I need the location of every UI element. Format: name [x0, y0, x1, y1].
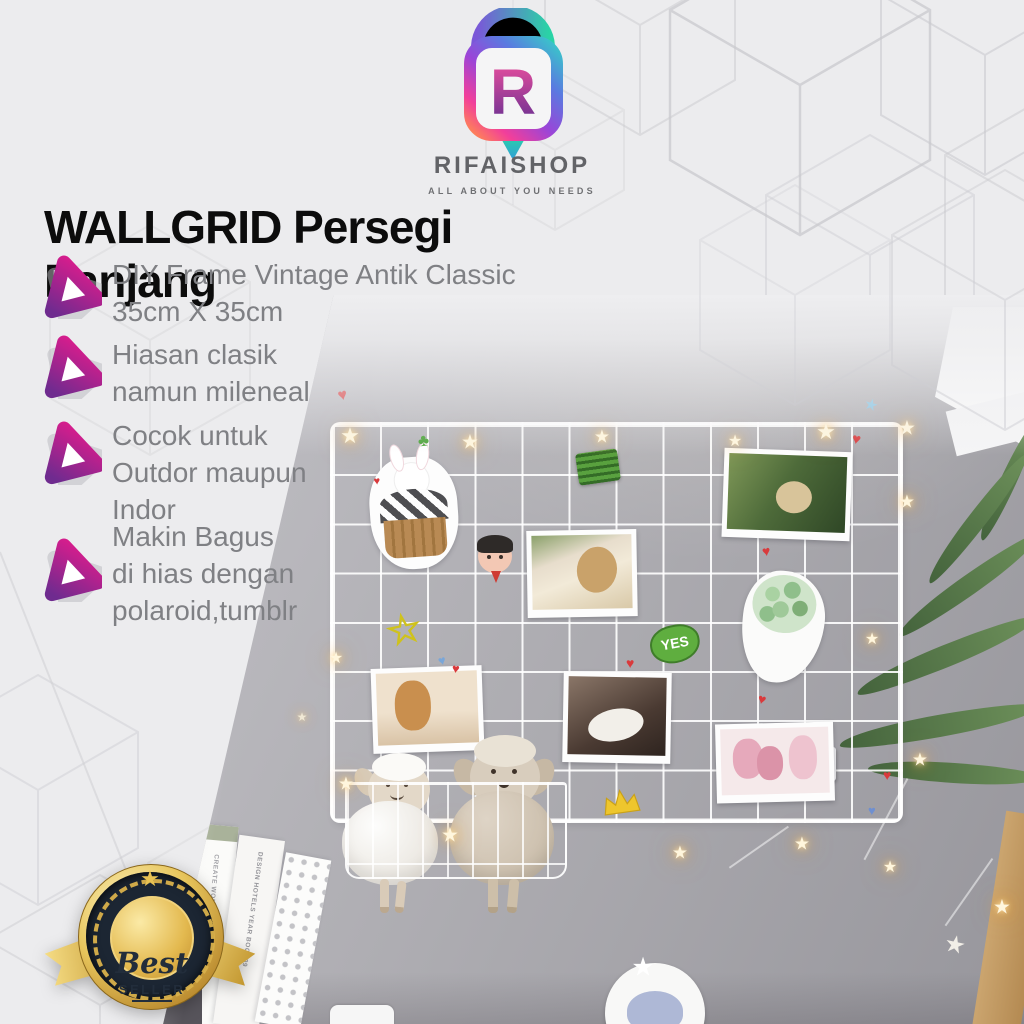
heart-clip-icon: ♥: [626, 655, 634, 671]
star-light-icon: ★: [816, 419, 836, 445]
heart-clip-icon: ♥: [883, 767, 891, 783]
feature-text: Hiasan clasik namun mileneal: [112, 336, 532, 410]
best-seller-badge: Best SELLER ★: [52, 858, 248, 1024]
brand-tagline: ALL ABOUT YOU NEEDS: [0, 186, 1024, 196]
badge-best-label: Best: [112, 946, 192, 980]
logo-letter: R: [490, 56, 536, 128]
feature-bullet-icon: [36, 419, 102, 485]
feature-bullet-icon: [36, 333, 102, 399]
star-light-icon: ★: [338, 774, 354, 795]
star-light-icon: ★: [297, 710, 308, 724]
feature-bullet-icon: [36, 536, 102, 602]
feature-text: DIY Frame Vintage Antik Classic 35cm X 3…: [112, 256, 532, 330]
badge-seller-label: SELLER: [112, 982, 192, 997]
polaroid-cat-paws: [526, 529, 638, 618]
star-light-icon: ★: [883, 857, 897, 877]
promo-page: ♥ YES ☆ ♥ ♥ ♥ ♥ ♥ ♥ ♥ ♥ ♥ ★ ♣: [0, 0, 1024, 1024]
feature-item: Hiasan clasik namun mileneal: [36, 333, 516, 413]
badge-inner-circle: Best SELLER: [110, 896, 194, 980]
mug: [330, 1005, 394, 1024]
star-light-icon: ★: [899, 492, 915, 513]
white-star-decor-icon: ★: [631, 952, 654, 983]
heart-clip-blue-icon: ♥: [868, 803, 876, 818]
star-light-icon: ★: [794, 834, 810, 855]
star-light-icon: ★: [329, 648, 343, 668]
banner-pin-sticker: [575, 448, 621, 486]
brand-name: RIFAISHOP: [0, 152, 1024, 180]
photo-content: [720, 727, 830, 796]
feature-item: Cocok untuk Outdor maupun Indor: [36, 415, 516, 533]
star-light-icon: ★: [865, 629, 879, 649]
star-light-icon: ★: [441, 823, 459, 848]
shop-logo-icon: R: [412, 8, 612, 158]
crown-clip-icon: [598, 784, 643, 818]
star-light-icon: ★: [594, 427, 610, 448]
star-light-icon: ★: [728, 431, 742, 451]
polaroid-white-cat: [562, 671, 672, 764]
photo-content: [567, 676, 666, 756]
badge-star-icon: ★: [52, 866, 248, 892]
heart-clip-icon: ♥: [451, 661, 460, 677]
star-light-icon: ★: [672, 843, 688, 864]
feature-item: DIY Frame Vintage Antik Classic 35cm X 3…: [36, 253, 516, 333]
photo-content: [531, 534, 632, 610]
polaroid-cat-leaves: [721, 448, 852, 541]
feature-text: Makin Bagus di hias dengan polaroid,tumb…: [112, 518, 532, 629]
yes-badge-label: YES: [660, 633, 690, 654]
feature-bullet-icon: [36, 253, 102, 319]
photo-content: [727, 453, 848, 533]
star-light-icon: ★: [993, 895, 1011, 920]
feature-text: Cocok untuk Outdor maupun Indor: [112, 417, 532, 528]
feature-item: Makin Bagus di hias dengan polaroid,tumb…: [36, 518, 516, 636]
star-light-icon: ★: [912, 750, 928, 771]
polaroid-pink-cacti: [715, 721, 835, 803]
star-light-icon: ★: [898, 416, 916, 441]
